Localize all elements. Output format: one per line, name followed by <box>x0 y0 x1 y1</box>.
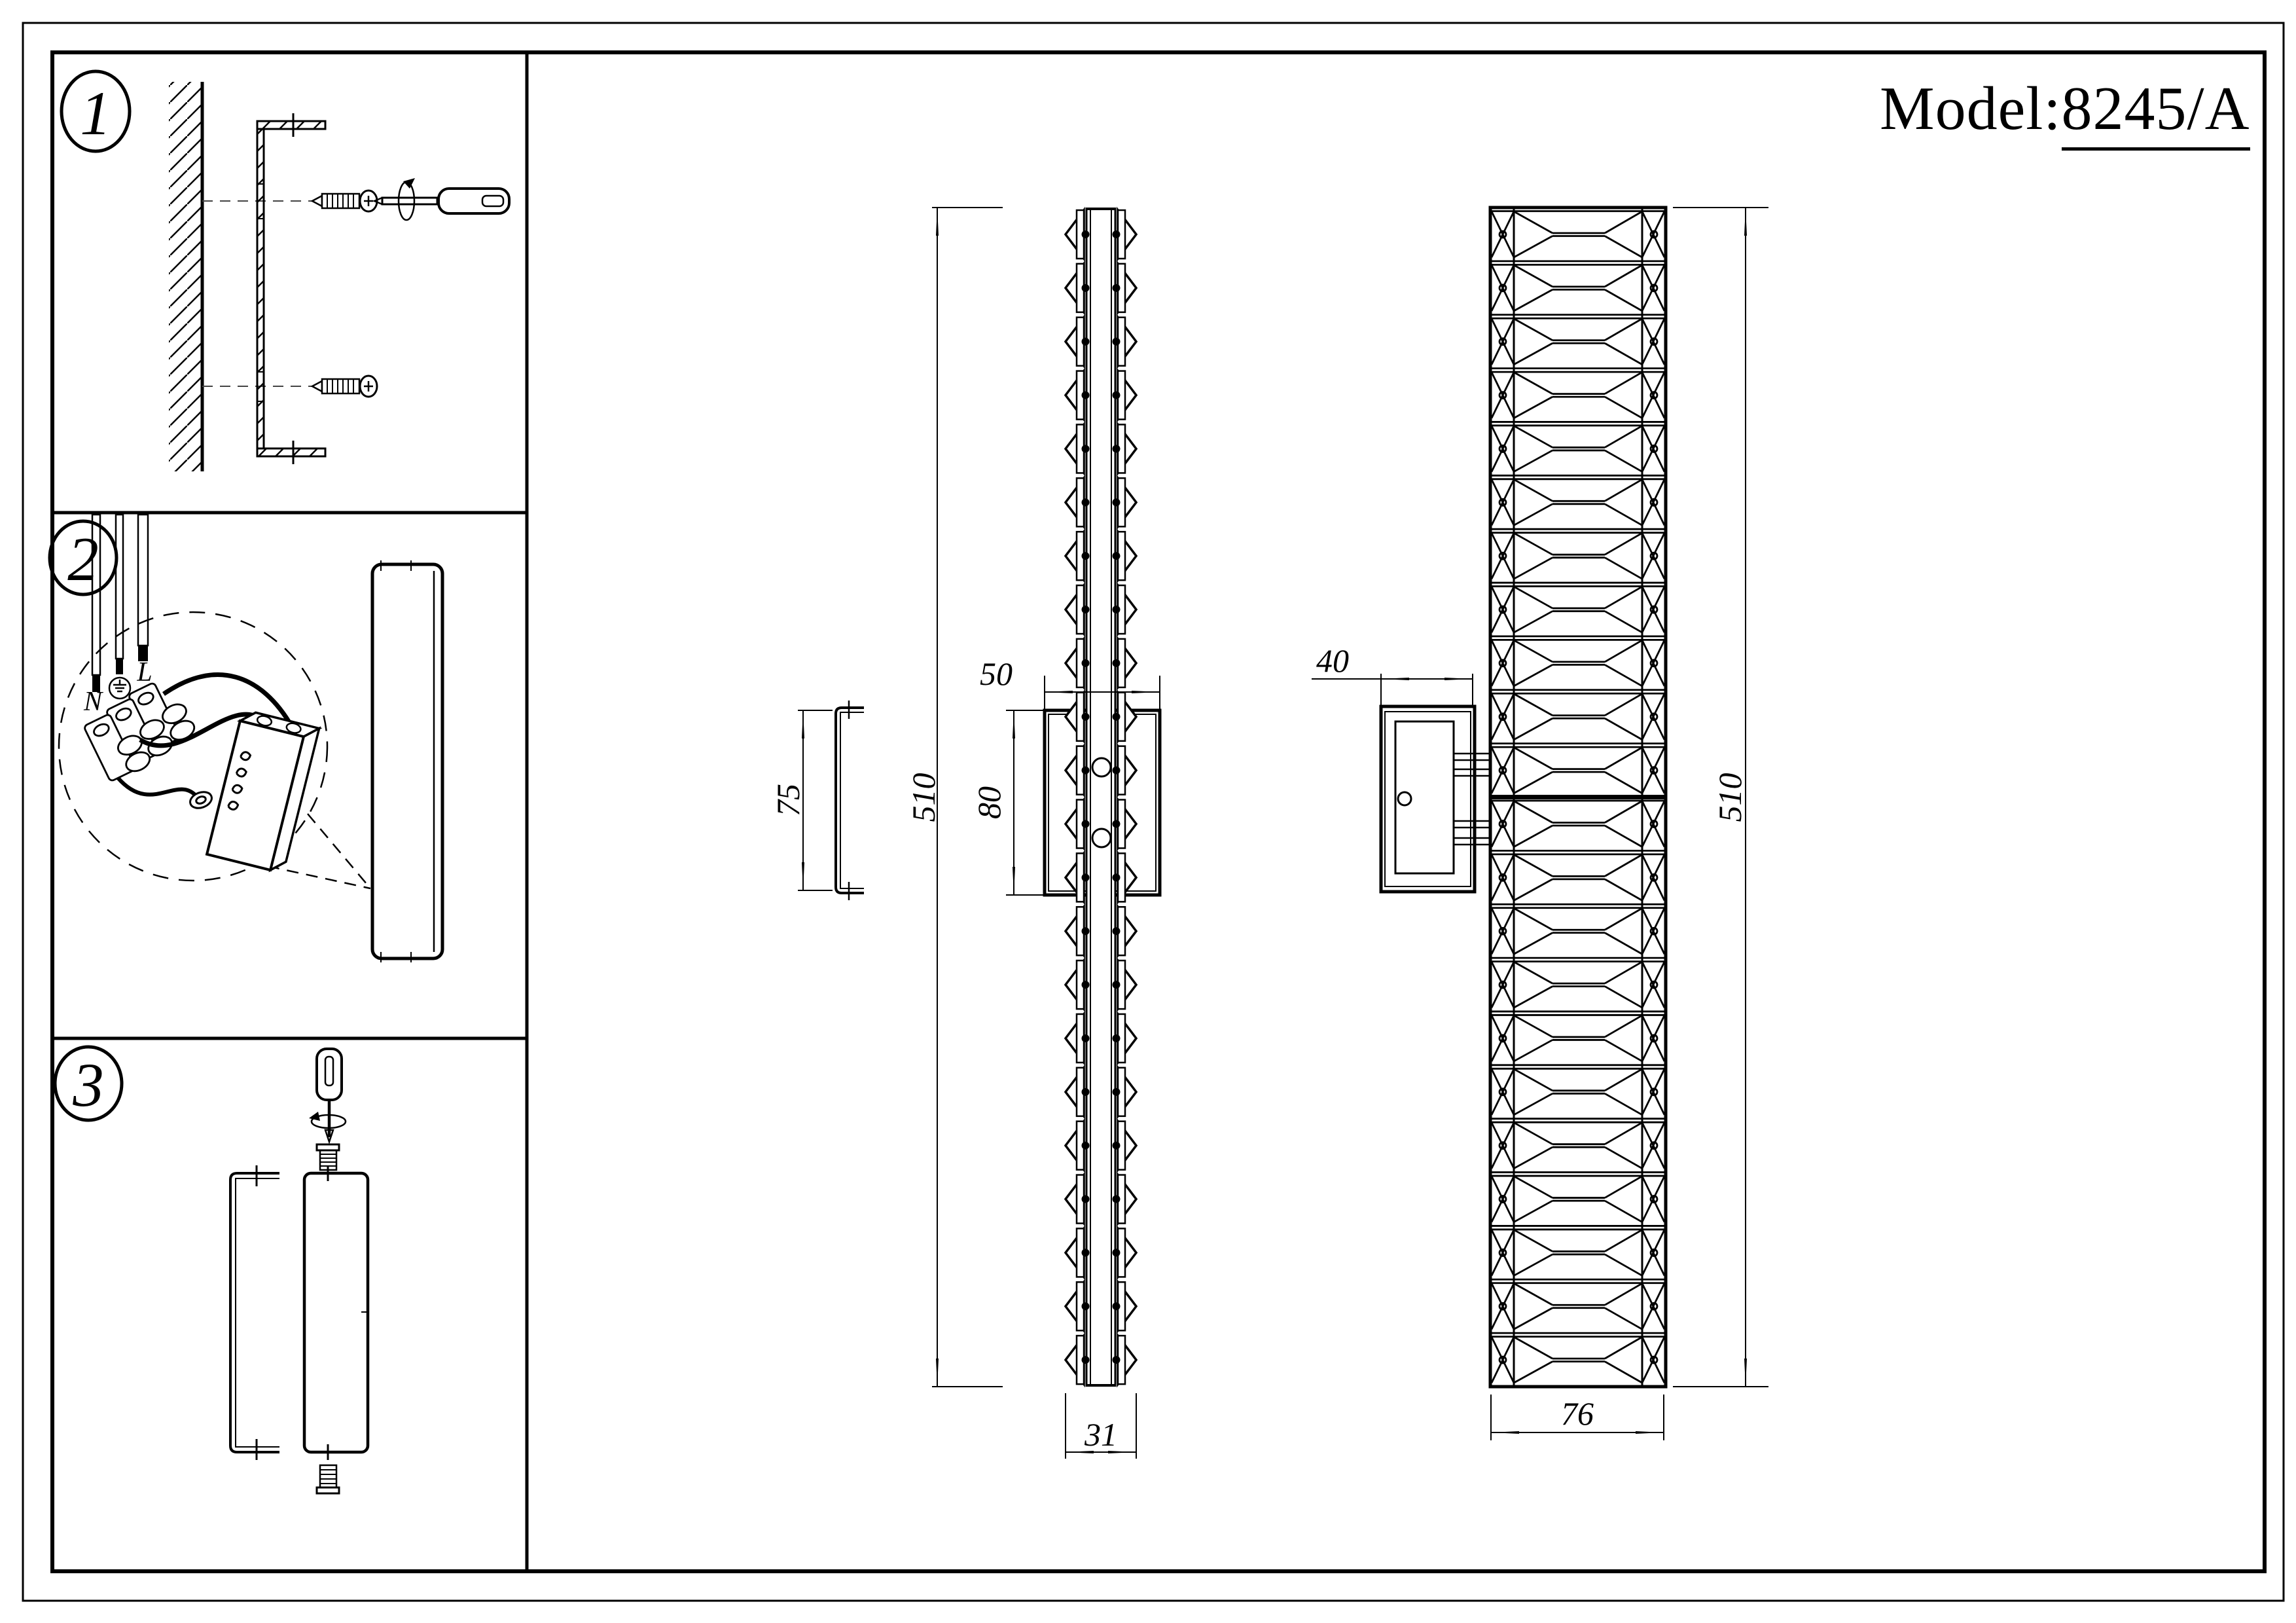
screwdriver-icon <box>374 189 509 213</box>
dim-plate-height: 80 <box>971 710 1047 895</box>
label-neutral: N <box>83 687 103 717</box>
view-front <box>1381 208 1666 1387</box>
panel-step-2: 2 N L <box>50 515 442 962</box>
technical-drawing: 1 <box>0 0 2296 1623</box>
model-title: Model:8245/A <box>1880 73 2250 144</box>
panel-step-1: 1 <box>62 71 509 471</box>
dim-plate-height-text: 80 <box>971 786 1007 819</box>
set-screw-bottom <box>317 1465 339 1493</box>
dim-box-depth-text: 40 <box>1316 642 1349 679</box>
ground-symbol-icon <box>109 678 130 699</box>
bracket-profile <box>230 1165 279 1460</box>
dim-plate-width-text: 50 <box>980 655 1013 692</box>
backplate-panel <box>372 560 442 962</box>
step-3-number: 3 <box>72 1050 104 1120</box>
dim-bracket-height: 75 <box>770 710 833 890</box>
dim-side-depth: 31 <box>1066 1393 1136 1459</box>
rotation-arrow-icon <box>309 1112 346 1128</box>
wall-screw-lower <box>312 376 377 397</box>
front-wall-box <box>1381 706 1490 892</box>
mounting-hole-lower <box>1092 829 1111 847</box>
dim-front-height: 510 <box>1673 208 1768 1387</box>
wall-section <box>169 82 202 471</box>
rotation-arrow-icon <box>399 178 415 220</box>
model-number: 8245/A <box>2062 75 2250 151</box>
mounting-bracket-section <box>257 113 325 464</box>
model-label: Model: <box>1880 75 2062 143</box>
led-driver-box <box>207 710 319 873</box>
step-2-number: 2 <box>67 524 99 594</box>
dim-bracket-height-text: 75 <box>770 784 806 816</box>
dim-front-width-text: 76 <box>1561 1395 1594 1432</box>
front-body <box>1490 208 1666 1387</box>
dim-front-width: 76 <box>1491 1395 1664 1440</box>
mounting-hole-upper <box>1092 758 1111 776</box>
lamp-backplate <box>304 1165 368 1460</box>
step-1-number: 1 <box>80 79 111 148</box>
wire-ground <box>116 515 123 674</box>
side-bracket <box>836 701 864 900</box>
wire-l <box>138 515 148 661</box>
drawing-sheet: 1 <box>0 0 2296 1623</box>
dim-side-depth-text: 31 <box>1084 1416 1117 1453</box>
dim-box-depth: 40 <box>1312 642 1473 705</box>
dim-front-height-text: 510 <box>1712 773 1748 822</box>
wall-screw-upper <box>312 191 377 211</box>
label-live: L <box>136 657 152 687</box>
panel-step-3: 3 <box>55 1047 368 1493</box>
dim-side-height-text: 510 <box>905 773 942 822</box>
